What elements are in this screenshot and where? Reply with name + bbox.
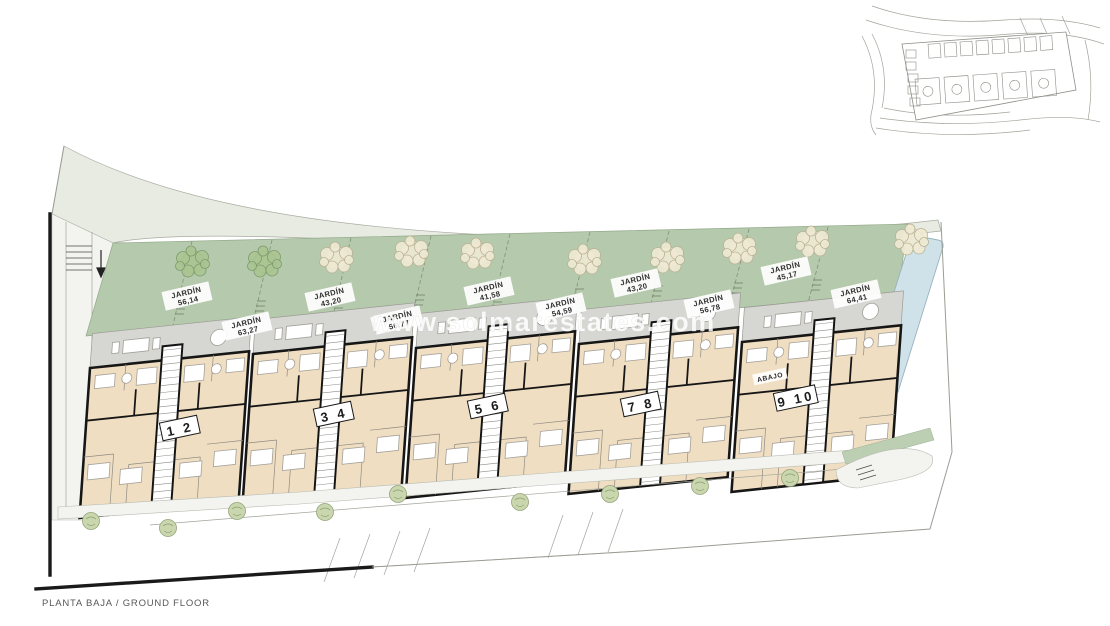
bush-icon: [83, 513, 100, 530]
bush-icon: [692, 478, 709, 495]
mini-site-map: [862, 6, 1104, 135]
watermark-text: www.solmarestates.com: [369, 307, 716, 337]
bush-icon: [229, 503, 246, 520]
bush-icon: [317, 504, 334, 521]
bush-icon: [512, 494, 529, 511]
bush-icon: [160, 520, 177, 537]
bush-icon: [390, 486, 407, 503]
bush-icon: [602, 486, 619, 503]
unit-pair-block: [80, 317, 252, 518]
bush-icon: [782, 470, 799, 487]
site-plan-canvas: JARDÍN 56,14 JARDÍN 63,27 JARDÍN 43,20 J…: [0, 0, 1110, 626]
plan-title: PLANTA BAJA / GROUND FLOOR: [42, 598, 210, 609]
